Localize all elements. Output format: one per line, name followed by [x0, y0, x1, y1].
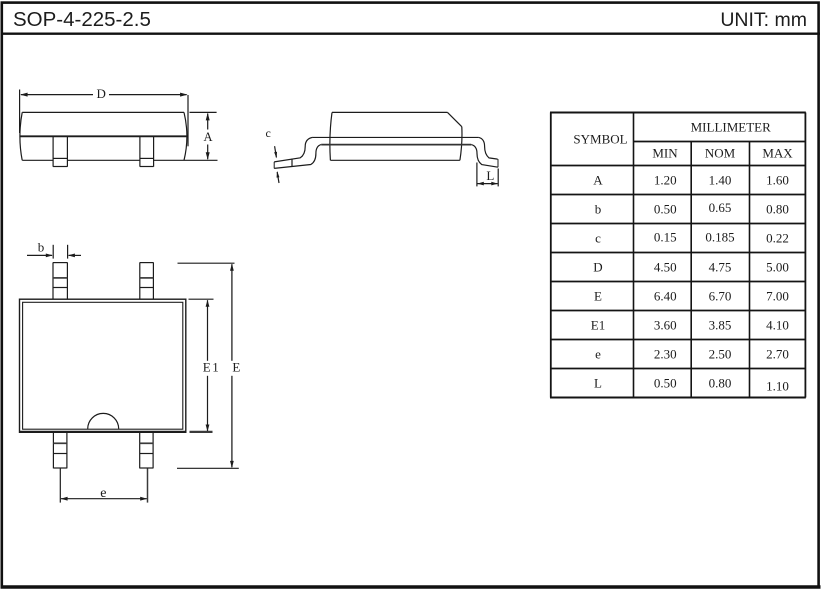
svg-text:2.30: 2.30: [654, 347, 677, 362]
svg-text:MAX: MAX: [762, 145, 793, 160]
svg-text:4.75: 4.75: [709, 260, 732, 275]
svg-text:5.00: 5.00: [766, 260, 789, 275]
svg-text:SYMBOL: SYMBOL: [573, 132, 627, 147]
svg-text:D: D: [593, 260, 602, 275]
svg-text:0.185: 0.185: [705, 230, 734, 245]
svg-text:E: E: [594, 289, 602, 304]
svg-text:MIN: MIN: [652, 145, 678, 160]
svg-text:2.70: 2.70: [766, 347, 789, 362]
svg-text:1.20: 1.20: [654, 173, 677, 188]
svg-text:e: e: [100, 486, 106, 501]
svg-text:E1: E1: [203, 360, 220, 375]
svg-text:4.10: 4.10: [766, 318, 789, 333]
svg-text:2.50: 2.50: [709, 347, 732, 362]
svg-text:c: c: [266, 126, 271, 140]
svg-text:0.50: 0.50: [654, 376, 677, 391]
svg-text:b: b: [595, 202, 602, 217]
svg-text:UNIT: mm: UNIT: mm: [720, 9, 807, 31]
svg-text:6.40: 6.40: [654, 289, 677, 304]
svg-text:0.22: 0.22: [766, 231, 789, 246]
svg-text:4.50: 4.50: [654, 260, 677, 275]
svg-text:0.80: 0.80: [709, 376, 732, 391]
svg-text:L: L: [486, 168, 494, 183]
svg-text:MILLIMETER: MILLIMETER: [691, 120, 771, 135]
svg-text:E1: E1: [591, 318, 605, 333]
svg-text:1.60: 1.60: [766, 173, 789, 188]
svg-text:L: L: [594, 376, 602, 391]
svg-text:A: A: [203, 130, 212, 144]
svg-text:b: b: [38, 240, 45, 255]
svg-text:0.65: 0.65: [709, 200, 732, 215]
svg-text:0.80: 0.80: [766, 202, 789, 217]
svg-text:E: E: [232, 360, 240, 375]
svg-text:NOM: NOM: [705, 145, 736, 160]
svg-text:c: c: [595, 231, 601, 246]
svg-text:SOP-4-225-2.5: SOP-4-225-2.5: [13, 8, 151, 31]
svg-text:3.85: 3.85: [709, 318, 732, 333]
svg-text:3.60: 3.60: [654, 318, 677, 333]
svg-text:e: e: [595, 347, 601, 362]
svg-text:0.15: 0.15: [654, 230, 677, 245]
svg-text:0.50: 0.50: [654, 202, 677, 217]
svg-text:1.40: 1.40: [709, 173, 732, 188]
svg-text:1.10: 1.10: [766, 379, 789, 394]
svg-text:6.70: 6.70: [709, 289, 732, 304]
svg-text:D: D: [97, 86, 106, 101]
svg-text:A: A: [593, 173, 603, 188]
svg-text:7.00: 7.00: [766, 289, 789, 304]
